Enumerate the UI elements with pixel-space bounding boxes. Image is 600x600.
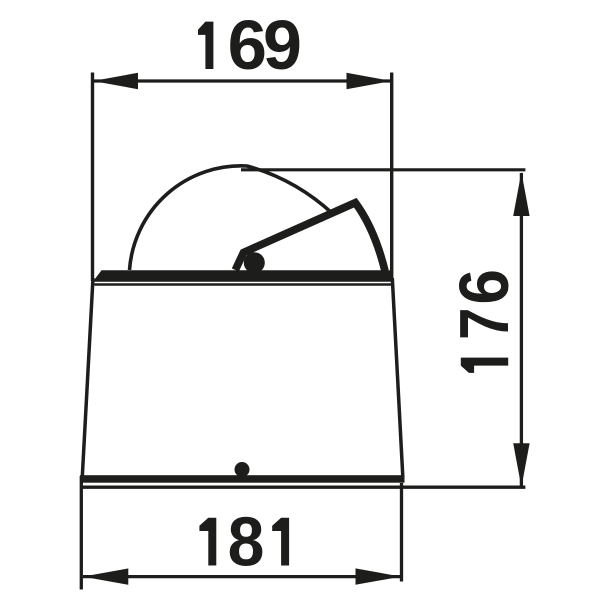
svg-text:6: 6 — [228, 5, 267, 84]
svg-text:9: 9 — [263, 6, 302, 84]
svg-text:8: 8 — [228, 503, 265, 581]
svg-text:7: 7 — [445, 308, 523, 340]
svg-text:6: 6 — [445, 269, 523, 304]
